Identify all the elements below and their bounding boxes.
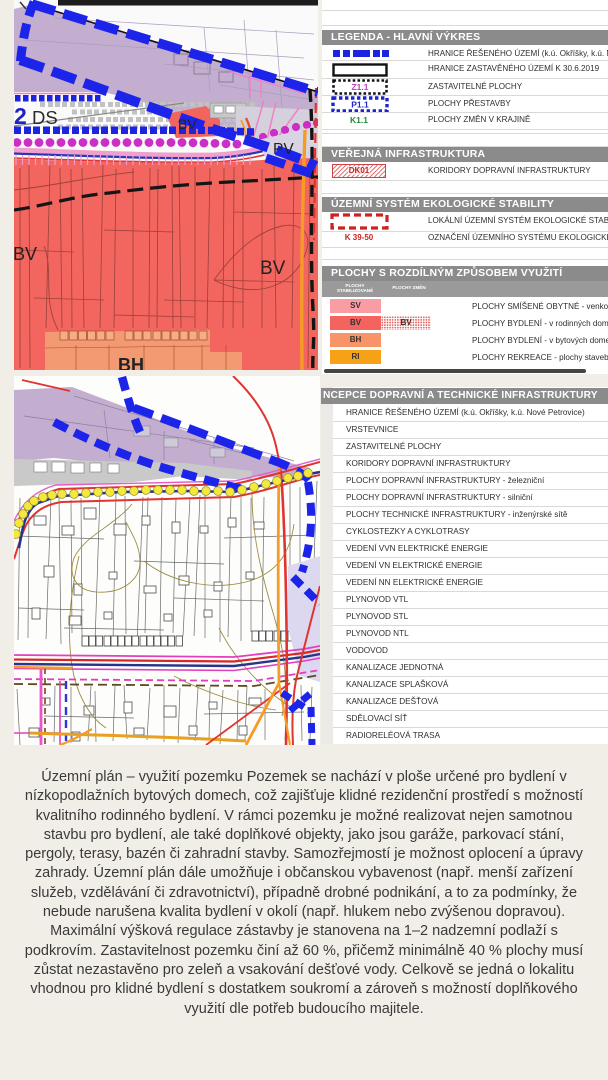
svg-text:DS: DS xyxy=(32,107,58,128)
svg-text:PV: PV xyxy=(273,141,294,158)
svg-text:BH: BH xyxy=(118,355,144,370)
svg-text:BV: BV xyxy=(260,258,286,279)
svg-text:Z1.1: Z1.1 xyxy=(351,82,368,92)
svg-text:2: 2 xyxy=(14,103,27,129)
svg-text:P1.1: P1.1 xyxy=(351,100,369,110)
svg-text:BV: BV xyxy=(178,116,197,132)
svg-text:BV: BV xyxy=(14,244,37,264)
